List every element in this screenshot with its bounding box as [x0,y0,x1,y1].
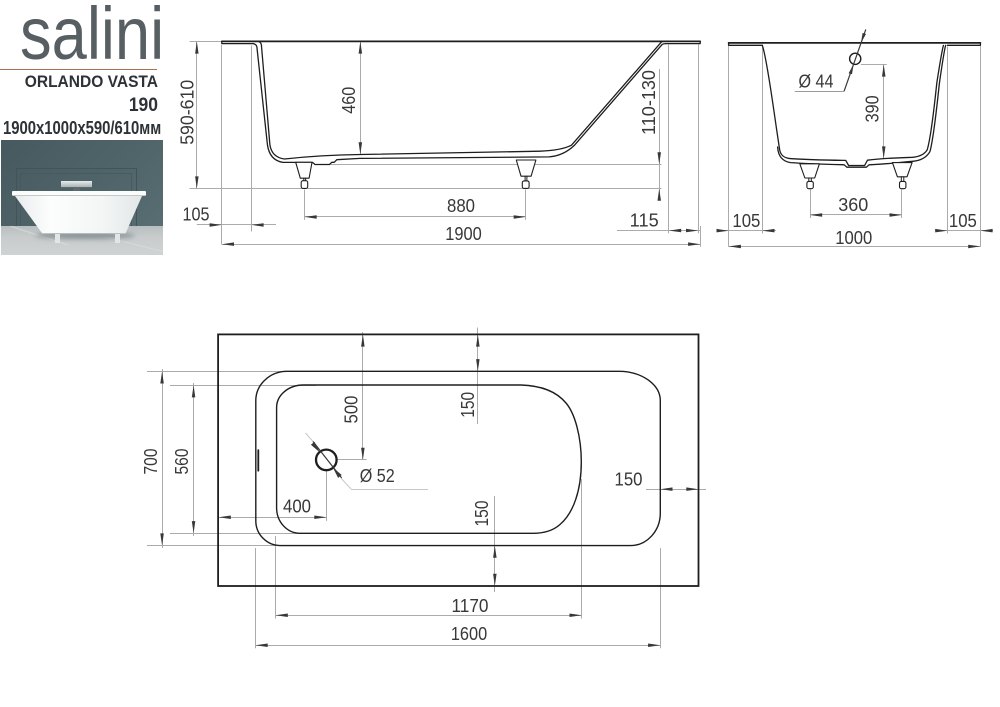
svg-text:1600: 1600 [451,624,487,644]
svg-text:560: 560 [172,449,192,475]
svg-text:110-130: 110-130 [639,70,659,135]
svg-text:500: 500 [341,396,361,424]
svg-text:400: 400 [283,496,311,516]
svg-text:390: 390 [862,95,882,122]
svg-text:105: 105 [732,211,760,231]
svg-text:460: 460 [339,87,359,114]
svg-text:105: 105 [183,205,210,225]
svg-text:1900: 1900 [445,224,482,244]
svg-text:1170: 1170 [452,596,489,616]
svg-text:Ø 44: Ø 44 [799,71,834,91]
svg-text:360: 360 [838,195,868,215]
svg-text:105: 105 [949,211,977,231]
svg-text:150: 150 [472,501,492,527]
svg-text:700: 700 [141,449,161,475]
svg-text:150: 150 [615,470,643,490]
svg-text:Ø 52: Ø 52 [360,466,395,486]
svg-text:880: 880 [447,196,475,216]
svg-text:115: 115 [630,210,659,230]
svg-text:1000: 1000 [835,228,872,248]
svg-text:590-610: 590-610 [177,80,197,145]
svg-text:150: 150 [458,392,478,418]
